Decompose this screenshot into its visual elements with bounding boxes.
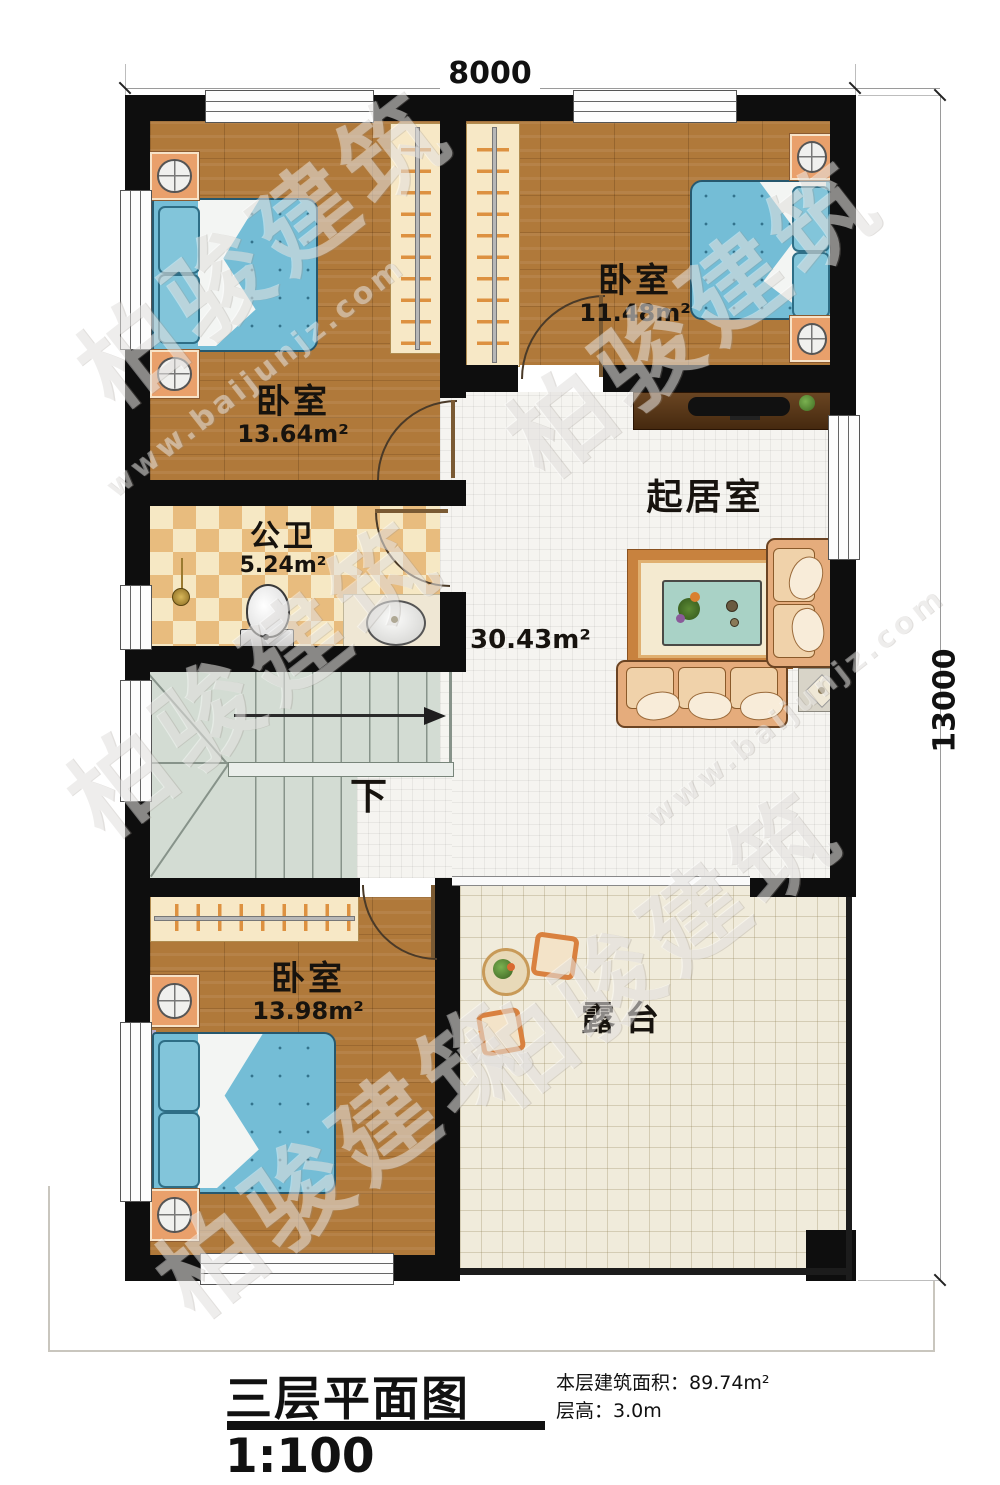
nightstand — [150, 1189, 199, 1241]
wardrobe-top-right — [466, 123, 520, 367]
stair-winder-line-3 — [150, 762, 228, 764]
window-left-bedroom3 — [120, 1022, 152, 1202]
toilet-button — [263, 634, 269, 640]
extension-line — [858, 95, 941, 96]
title-underline — [227, 1421, 545, 1430]
wardrobe-top-left — [390, 123, 442, 354]
room-name: 露台 — [555, 1000, 695, 1038]
floor-area-line: 本层建筑面积：89.74m² — [556, 1368, 770, 1395]
window-right-living — [828, 415, 860, 560]
window-top-left — [205, 90, 374, 123]
wall-terrace-bottom — [460, 1268, 852, 1275]
dimension-height: 13000 — [928, 646, 963, 756]
stair-lower-flight — [228, 776, 357, 878]
floor-drain-stem — [181, 558, 183, 592]
closet-rod — [154, 916, 355, 921]
terrace-sliding-door — [452, 876, 750, 886]
window-bottom-bedroom3 — [200, 1253, 394, 1285]
stair-edge-rail — [449, 672, 452, 775]
wall-bedroom3-right — [435, 878, 460, 1281]
flower-decor — [690, 592, 700, 602]
stair-direction-arrow — [424, 707, 446, 725]
wall-bedroom-bath — [125, 480, 466, 506]
bed-pillow — [158, 1040, 200, 1112]
plant-flower — [507, 963, 515, 971]
room-name: 卧室 — [555, 262, 715, 300]
floor-drain-icon — [172, 588, 190, 606]
nightstand — [790, 134, 834, 180]
tv-stand — [730, 416, 760, 420]
nightstand — [150, 975, 199, 1027]
room-name: 卧室 — [218, 383, 368, 421]
closet-rod — [492, 127, 497, 363]
stair-upper-flight — [228, 672, 452, 762]
room-area-living-room: 30.43m² — [470, 626, 590, 655]
wall-bath-stair — [125, 646, 466, 672]
coffee-table — [662, 580, 762, 646]
nightstand — [150, 152, 199, 200]
wall-bedroom2-left — [466, 365, 518, 392]
window-left-stairs — [120, 680, 152, 802]
window-left-bathroom — [120, 585, 152, 650]
room-label-bedroom-bottom: 卧室 13.98m² — [228, 960, 388, 1025]
plan-title: 三层平面图 — [225, 1372, 470, 1427]
table-cup — [730, 618, 739, 627]
sink-faucet — [391, 616, 398, 623]
wall-terrace-top — [750, 878, 856, 897]
door-leaf-bathroom — [375, 509, 448, 513]
patio-chair — [530, 931, 580, 981]
room-area: 13.98m² — [228, 998, 388, 1025]
floor-area-value: 89.74m² — [689, 1372, 770, 1394]
extension-line — [858, 1280, 941, 1281]
stair-direction-line — [234, 714, 424, 717]
tv-icon — [688, 397, 790, 416]
room-name: 卧室 — [228, 960, 388, 998]
bed-pillow — [158, 206, 200, 274]
wardrobe-bottom — [150, 893, 359, 942]
table-cup — [726, 600, 738, 612]
patio-chair — [476, 1007, 527, 1058]
sink-icon — [366, 600, 426, 646]
stair-down-text: 下 — [340, 776, 400, 817]
door-leaf-bedroom3 — [431, 885, 435, 958]
window-top-right — [573, 90, 737, 123]
flower-decor — [676, 614, 685, 623]
stair-down-label: 下 — [340, 776, 400, 817]
ground-line-bottom — [48, 1350, 935, 1352]
room-name: 公卫 — [218, 520, 348, 554]
floor-area-label: 本层建筑面积： — [556, 1372, 689, 1394]
lamp-icon — [797, 323, 827, 355]
room-area: 13.64m² — [218, 421, 368, 448]
lamp-icon — [157, 159, 191, 192]
room-area: 5.24m² — [218, 554, 348, 579]
room-label-terrace: 露台 — [555, 1000, 695, 1038]
nightstand — [790, 316, 834, 362]
dimension-width: 8000 — [440, 56, 540, 91]
room-label-bedroom-top-right: 卧室 11.48m² — [555, 262, 715, 327]
lamp-icon — [157, 1197, 191, 1234]
wall-bedroom2-right — [603, 365, 856, 392]
room-area: 30.43m² — [470, 626, 590, 655]
window-left-bedroom1 — [120, 190, 152, 350]
lamp-icon — [157, 357, 191, 390]
room-label-bathroom: 公卫 5.24m² — [218, 520, 348, 578]
lamp-icon — [797, 141, 827, 173]
floor-height-value: 3.0m — [613, 1400, 662, 1422]
stair-handrail — [228, 762, 454, 777]
ground-line-right — [933, 1281, 935, 1352]
wall-closet-divider — [440, 95, 466, 398]
nightstand — [150, 350, 199, 398]
plan-scale: 1:100 — [225, 1429, 375, 1484]
plant-icon — [799, 395, 815, 411]
bed-pillow — [158, 274, 200, 344]
bed-pillow — [158, 1112, 200, 1188]
lamp-icon — [157, 983, 191, 1020]
room-label-bedroom-top-left: 卧室 13.64m² — [218, 383, 368, 448]
closet-rod — [415, 127, 420, 350]
room-label-living-room: 起居室 — [615, 478, 795, 518]
wall-terrace-right — [846, 897, 852, 1280]
floor-plan-canvas: 下 — [0, 0, 1000, 1485]
floor-terrace — [460, 884, 846, 1274]
floor-height-line: 层高：3.0m — [556, 1396, 662, 1423]
bed-pillow — [792, 252, 830, 318]
room-name: 起居室 — [615, 478, 795, 518]
side-table-knob — [818, 687, 825, 694]
patio-table — [482, 948, 530, 996]
door-leaf-bedroom1 — [451, 400, 455, 478]
room-area: 11.48m² — [555, 300, 715, 327]
floor-height-label: 层高： — [556, 1400, 613, 1422]
wall-bedroom3-top — [125, 878, 360, 897]
bed-pillow — [792, 186, 830, 252]
ground-line-left — [48, 1186, 50, 1352]
toilet-icon — [246, 584, 290, 638]
